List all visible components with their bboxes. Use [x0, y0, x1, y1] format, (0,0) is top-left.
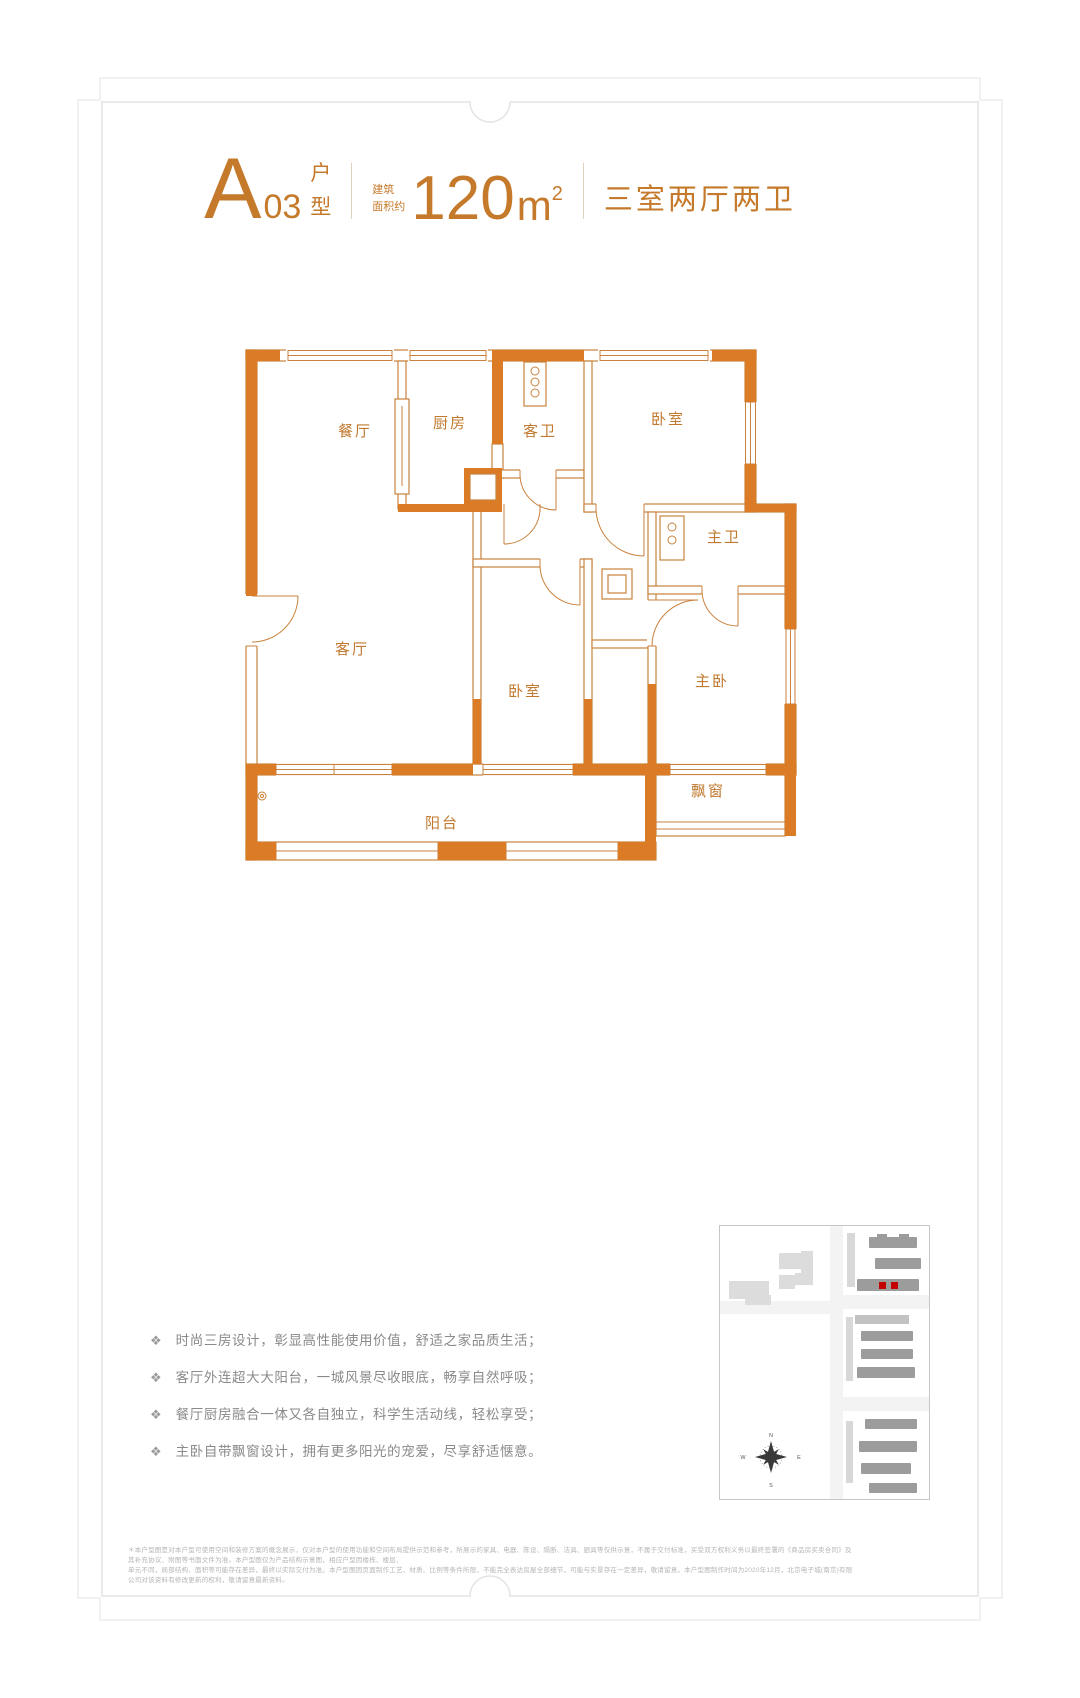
- floor-plan: 餐厅 厨房 客卫 卧室 主卫 客厅 卧室 主卧 飘窗 阳台: [240, 344, 800, 869]
- area-label-top: 建筑: [372, 182, 405, 199]
- compass-w: W: [740, 1455, 746, 1461]
- room-label-living: 客厅: [335, 641, 369, 658]
- room-label-balcony: 阳台: [425, 815, 459, 832]
- feature-text: 餐厅厨房融合一体又各自独立，科学生活动线，轻松享受；: [176, 1407, 543, 1423]
- feature-text: 主卧自带飘窗设计，拥有更多阳光的宠爱，尽享舒适惬意。: [176, 1444, 543, 1460]
- feature-item: ❖ 时尚三房设计，彰显高性能使用价值，舒适之家品质生活；: [150, 1333, 542, 1349]
- unit-type-number: 03: [263, 194, 301, 221]
- room-label-master-bedroom: 主卧: [695, 673, 729, 690]
- area-label: 建筑 面积约: [372, 182, 405, 215]
- page: A 03 户 型 建筑 面积约 120 m2 三室两厅两卫: [0, 0, 1080, 1698]
- unit-suffix-bottom: 型: [310, 191, 331, 221]
- room-label-dining: 餐厅: [338, 423, 372, 440]
- unit-type-suffix: 户 型: [310, 157, 331, 221]
- unit-suffix-top: 户: [310, 157, 331, 187]
- feature-text: 客厅外连超大大阳台，一城风景尽收眼底，畅享自然呼吸；: [176, 1370, 543, 1386]
- header-divider: [583, 163, 584, 219]
- area-value: 120: [411, 175, 514, 223]
- room-label-bedroom-second: 卧室: [508, 683, 542, 700]
- plan-fixtures: [258, 362, 684, 800]
- feature-list: ❖ 时尚三房设计，彰显高性能使用价值，舒适之家品质生活； ❖ 客厅外连超大大阳台…: [150, 1333, 542, 1481]
- compass-s: S: [769, 1483, 773, 1489]
- disclaimer-line-1: ＊本户型图是对本户型可使用空间和装修方案的概念展示，仅对本户型的使用功能和空间布…: [128, 1546, 854, 1566]
- room-label-master-bath: 主卫: [707, 529, 741, 546]
- area-unit: m2: [517, 189, 563, 223]
- area-exponent: 2: [552, 186, 563, 202]
- room-label-guest-bath: 客卫: [523, 423, 557, 440]
- disclaimer-line-2: 单元不同，局部结构、面积等可能存在差异，最终以实际交付为准。本户型图因页面制作工…: [128, 1566, 854, 1586]
- feature-item: ❖ 客厅外连超大大阳台，一城风景尽收眼底，畅享自然呼吸；: [150, 1370, 542, 1386]
- room-label-bay-window: 飘窗: [691, 782, 725, 800]
- rooms-summary: 三室两厅两卫: [604, 176, 796, 218]
- site-map: N E S W: [719, 1225, 930, 1500]
- diamond-bullet-icon: ❖: [150, 1407, 162, 1423]
- feature-item: ❖ 餐厅厨房融合一体又各自独立，科学生活动线，轻松享受；: [150, 1407, 542, 1423]
- feature-text: 时尚三房设计，彰显高性能使用价值，舒适之家品质生活；: [176, 1333, 543, 1349]
- unit-type-letter: A: [204, 156, 261, 223]
- compass-n: N: [769, 1433, 773, 1439]
- diamond-bullet-icon: ❖: [150, 1370, 162, 1386]
- feature-item: ❖ 主卧自带飘窗设计，拥有更多阳光的宠爱，尽享舒适惬意。: [150, 1444, 542, 1460]
- compass-e: E: [797, 1455, 801, 1461]
- header-divider: [351, 163, 352, 219]
- disclaimer: ＊本户型图是对本户型可使用空间和装修方案的概念展示，仅对本户型的使用功能和空间布…: [128, 1546, 854, 1586]
- diamond-bullet-icon: ❖: [150, 1444, 162, 1460]
- room-label-bedroom-top: 卧室: [651, 411, 685, 428]
- area-label-bottom: 面积约: [372, 199, 405, 216]
- room-label-kitchen: 厨房: [433, 415, 467, 432]
- diamond-bullet-icon: ❖: [150, 1333, 162, 1349]
- unit-header: A 03 户 型 建筑 面积约 120 m2 三室两厅两卫: [0, 156, 1080, 223]
